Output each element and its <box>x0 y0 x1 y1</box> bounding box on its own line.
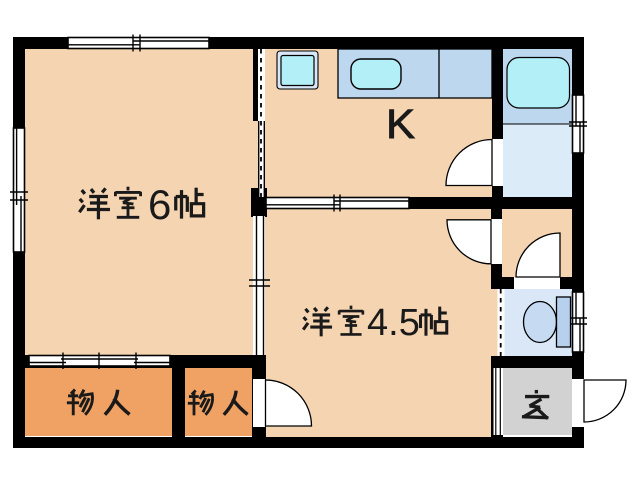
svg-text:4.5: 4.5 <box>367 302 420 344</box>
svg-text:K: K <box>386 101 415 147</box>
svg-text:6: 6 <box>148 181 171 228</box>
